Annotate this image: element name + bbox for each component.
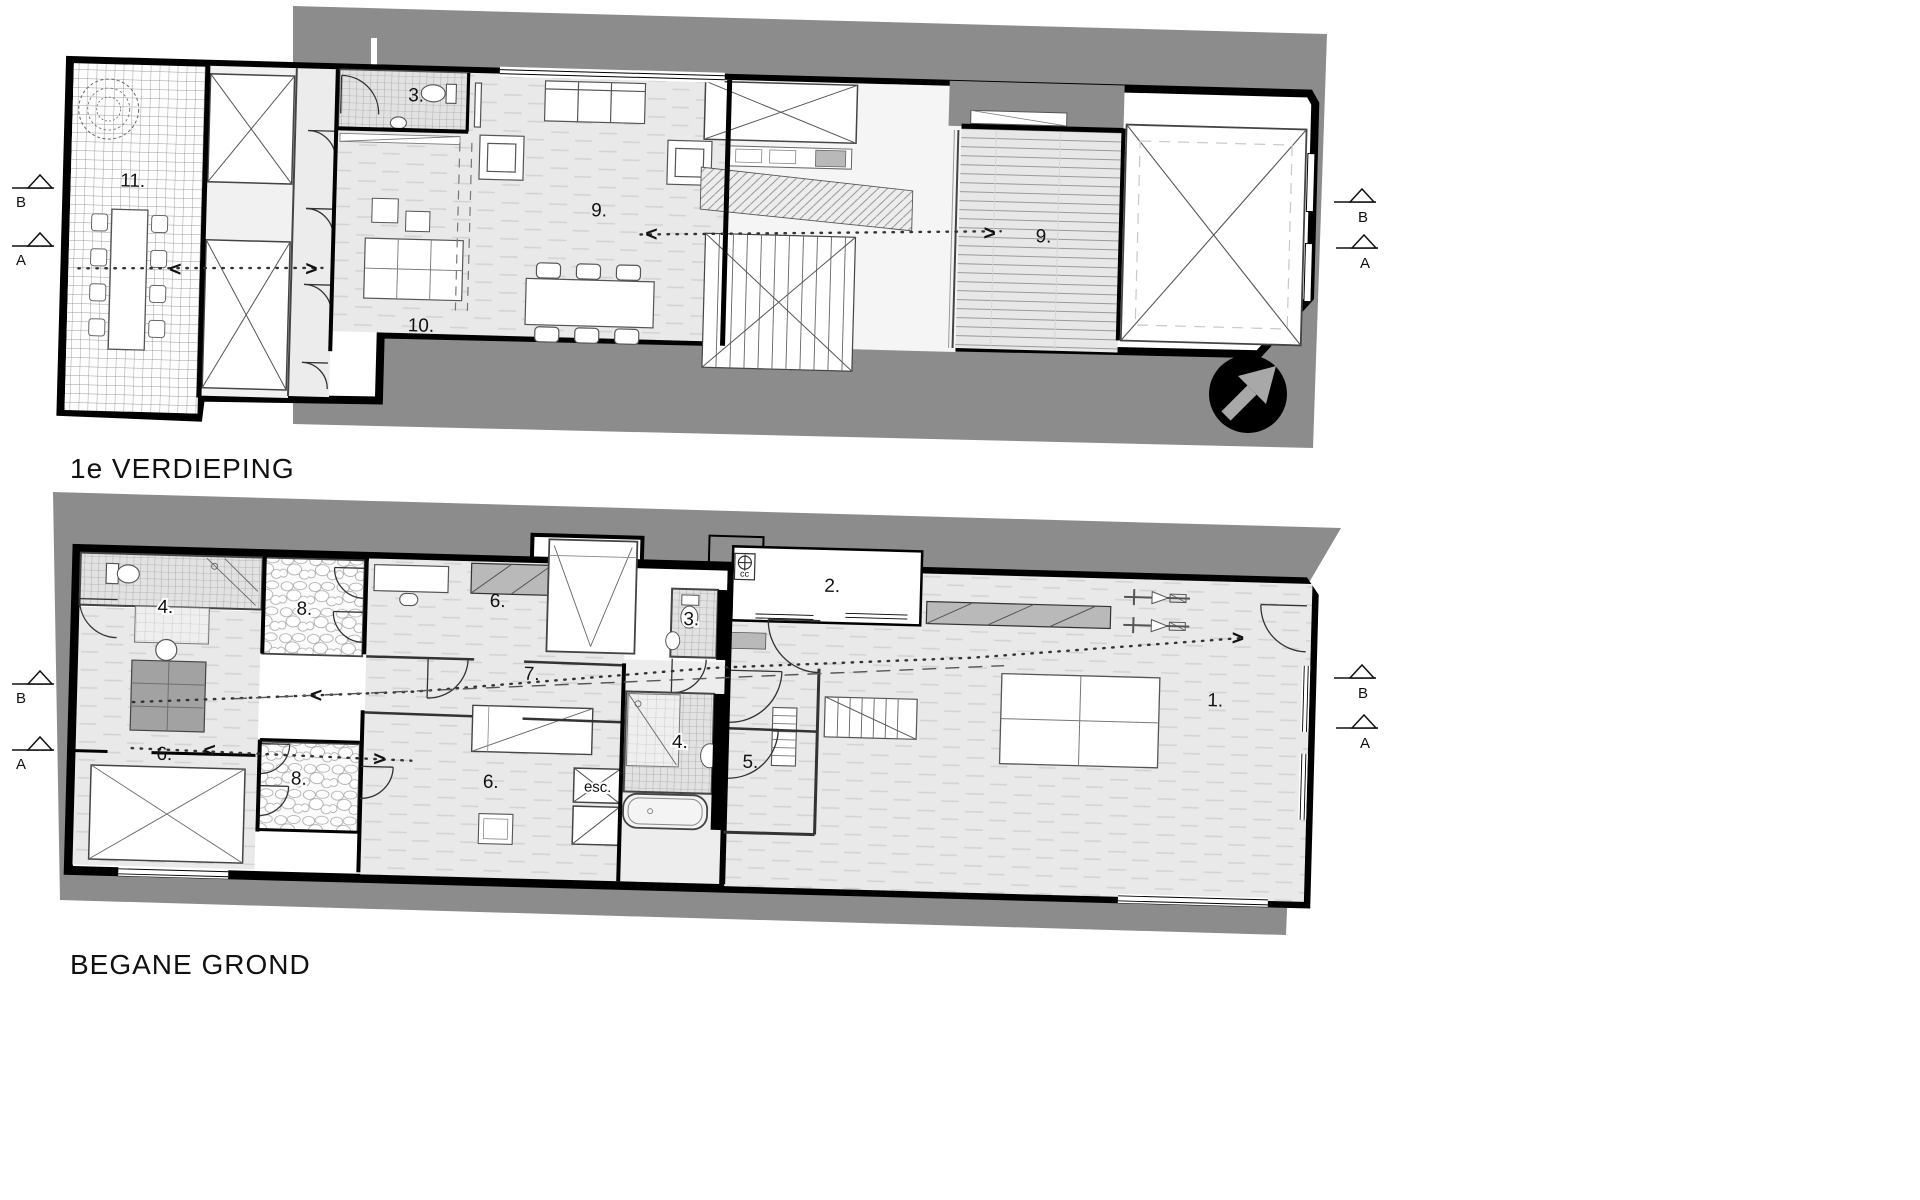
room-label-stairs: esc. <box>584 778 612 796</box>
svg-text:B: B <box>16 194 26 211</box>
sink-icon <box>665 632 679 650</box>
svg-text:B: B <box>16 690 26 707</box>
void-room <box>1121 125 1307 346</box>
dining-table <box>525 262 655 344</box>
room-label-roof-terrace: 9. <box>1035 226 1051 247</box>
room-label-bedroom: 6. <box>156 744 172 765</box>
arrow-left-icon: < <box>203 739 216 762</box>
room-label-corridor: 7. <box>524 664 540 685</box>
bed-icon <box>472 705 593 754</box>
wardrobe-icon <box>926 602 1111 629</box>
floor-plan-drawing: < > < > 11. 3. 9. 10. 9. B A B <box>0 0 1920 1200</box>
arrow-right-icon: > <box>305 257 318 280</box>
bathtub-icon <box>623 793 708 829</box>
bathroom-ground-main <box>623 691 728 830</box>
room-label-wc: 3. <box>683 609 699 630</box>
drawing-sheet: < > < > 11. 3. 9. 10. 9. B A B <box>0 0 1920 1200</box>
room-label-patio: 8. <box>291 768 307 789</box>
svg-text:A: A <box>1360 255 1370 272</box>
room-label-terrace: 11. <box>120 170 146 192</box>
north-arrow-icon <box>1209 355 1287 433</box>
arrow-right-icon: > <box>1232 627 1245 650</box>
toilet-icon <box>106 563 140 584</box>
meter-symbol: cc <box>734 553 755 580</box>
room-label-bedroom: 6. <box>490 591 506 612</box>
arrow-right-icon: > <box>983 222 996 245</box>
bedroom-left-lower <box>89 765 245 863</box>
room-label-bedroom: 6. <box>483 772 499 793</box>
plan-title-first-floor: 1e VERDIEPING <box>70 453 295 484</box>
room-label-storage: 2. <box>824 576 840 597</box>
arrow-right-icon: > <box>373 748 386 771</box>
bed-mat <box>130 660 206 732</box>
room-label-bathroom: 3. <box>408 85 424 106</box>
party-wall-gap <box>371 38 377 66</box>
ladder-stairs <box>771 707 797 766</box>
bed-icon <box>546 539 637 653</box>
section-marker-B-right: B <box>1334 189 1376 226</box>
section-marker-B-left: B <box>12 671 54 707</box>
svg-text:B: B <box>1358 209 1368 226</box>
room-label-living: 9. <box>591 200 607 221</box>
wardrobe-icon <box>471 563 552 595</box>
section-marker-B-left: B <box>12 175 54 211</box>
sofa-icon <box>545 81 646 124</box>
svg-text:A: A <box>16 252 26 269</box>
svg-text:B: B <box>1358 685 1368 702</box>
section-marker-A-left: A <box>12 233 54 269</box>
svg-text:A: A <box>16 756 26 773</box>
room-label-patio: 8. <box>296 599 312 620</box>
patio-upper <box>262 558 365 657</box>
room-label-bathroom: 4. <box>672 732 688 753</box>
basin-icon <box>156 639 178 661</box>
radiator <box>474 83 481 127</box>
room-label-entrance: 1. <box>1207 690 1223 711</box>
arrow-left-icon: < <box>169 258 182 281</box>
plan-title-ground-floor: BEGANE GROND <box>70 949 311 980</box>
stairs-icon <box>824 697 917 739</box>
sink-icon <box>390 117 406 129</box>
room-label-room5: 5. <box>742 752 758 773</box>
svg-text:A: A <box>1360 735 1370 752</box>
section-marker-A-left: A <box>12 737 54 773</box>
section-marker-A-right: A <box>1336 235 1378 272</box>
table-grid <box>1000 674 1160 768</box>
desk-chair <box>478 814 513 845</box>
section-marker-A-right: A <box>1336 715 1378 752</box>
arrow-left-icon: < <box>645 223 658 246</box>
toilet-icon <box>421 84 457 104</box>
patio-lower <box>257 742 359 833</box>
room-label-bathroom: 4. <box>157 597 173 618</box>
section-marker-B-right: B <box>1334 665 1376 702</box>
room-label-kitchen: 10. <box>407 315 434 337</box>
arrow-left-icon: < <box>310 684 323 707</box>
meter-label: cc <box>740 568 750 578</box>
plan-ground-floor: cc <box>68 519 1315 908</box>
